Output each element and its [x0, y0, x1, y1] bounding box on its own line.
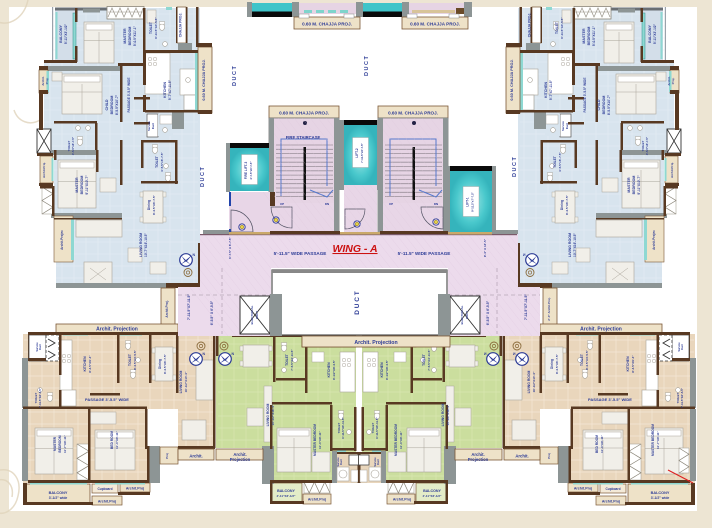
svg-text:6'-11.5"X4'-5.5": 6'-11.5"X4'-5.5": [154, 17, 158, 39]
svg-text:Archit.Proj: Archit.Proj: [126, 487, 144, 491]
svg-text:4'-5.5"x6'-7.5": 4'-5.5"x6'-7.5": [645, 136, 649, 155]
svg-text:4'-7.5"x6'-7.5": 4'-7.5"x6'-7.5": [249, 161, 253, 180]
svg-text:11'-4"X9'-11": 11'-4"X9'-11": [318, 430, 322, 449]
svg-text:7'-11.5"x6'-7.5": 7'-11.5"x6'-7.5": [360, 142, 364, 162]
svg-text:9'-7"X7'-11.5": 9'-7"X7'-11.5": [168, 79, 172, 100]
svg-text:9'-0.5"X11'-1": 9'-0.5"X11'-1": [592, 25, 596, 46]
svg-text:LIFT-1: LIFT-1: [466, 197, 470, 207]
svg-text:Archit.Proj.: Archit.Proj.: [670, 162, 674, 178]
svg-text:Projection: Projection: [230, 457, 251, 462]
svg-text:11'-4"X9'-11": 11'-4"X9'-11": [600, 434, 604, 453]
svg-text:7'-5.5"X4'-11.5": 7'-5.5"X4'-11.5": [290, 349, 294, 371]
svg-text:FIRE LIFT-3: FIRE LIFT-3: [244, 162, 248, 180]
svg-text:KITCHEN: KITCHEN: [327, 362, 331, 378]
svg-text:LIFT-2: LIFT-2: [355, 148, 359, 158]
svg-text:BEDROOM: BEDROOM: [587, 27, 591, 46]
svg-text:10'-7"X16'-10.5": 10'-7"X16'-10.5": [144, 233, 148, 257]
svg-text:0.60 M. CHAJJA PROJ.: 0.60 M. CHAJJA PROJ.: [388, 111, 438, 116]
svg-text:9'-1/2"X8'-4.5": 9'-1/2"X8'-4.5": [385, 359, 389, 380]
svg-text:ELECTRICAL: ELECTRICAL: [460, 305, 464, 324]
svg-text:LIVING ROOM: LIVING ROOM: [568, 233, 572, 257]
svg-text:D U C T: D U C T: [364, 55, 370, 76]
svg-text:3'-1/2" wide: 3'-1/2" wide: [651, 496, 670, 500]
svg-text:7'-5.5"X4'-11.5": 7'-5.5"X4'-11.5": [427, 349, 431, 371]
svg-text:Duct: Duct: [565, 123, 569, 129]
svg-text:0.60 M. CHAJJA PROJ.: 0.60 M. CHAJJA PROJ.: [302, 22, 352, 27]
svg-text:7'-11.5"X4'-5.5": 7'-11.5"X4'-5.5": [680, 387, 684, 408]
svg-text:9'-11"X3'-1/2": 9'-11"X3'-1/2": [653, 23, 657, 44]
svg-text:TOILET: TOILET: [422, 354, 426, 366]
svg-text:4'-5.5"x6'-7.5": 4'-5.5"x6'-7.5": [558, 152, 562, 172]
svg-text:MASTER BEDROOM: MASTER BEDROOM: [394, 424, 398, 456]
svg-text:Proj: Proj: [547, 453, 551, 459]
svg-text:MASTER: MASTER: [627, 177, 631, 193]
svg-text:BEDROOM: BEDROOM: [110, 96, 114, 115]
svg-text:6'-7.5" X 6'-7.5": 6'-7.5" X 6'-7.5": [228, 237, 232, 259]
svg-text:BALCONY: BALCONY: [648, 25, 652, 43]
svg-text:LIVING ROOM: LIVING ROOM: [139, 233, 143, 257]
svg-text:TOILET: TOILET: [155, 156, 159, 168]
svg-text:BEDROOM: BEDROOM: [632, 176, 636, 195]
svg-text:9'-11"X10'-7": 9'-11"X10'-7": [85, 175, 89, 195]
svg-text:Archit.Proj: Archit.Proj: [393, 498, 411, 502]
svg-text:16'-1/2"X10'-4": 16'-1/2"X10'-4": [532, 371, 536, 392]
svg-text:CHAJJA PROJ.: CHAJJA PROJ.: [179, 13, 183, 38]
svg-text:10'-1/2"X18'-4": 10'-1/2"X18'-4": [446, 404, 450, 425]
svg-text:KITCHEN: KITCHEN: [163, 82, 167, 98]
svg-text:Archit. Projection: Archit. Projection: [354, 340, 397, 346]
svg-text:Projection: Projection: [468, 457, 489, 462]
svg-text:Archit.Proj: Archit.Proj: [574, 487, 592, 491]
svg-text:8'-5.5"X10'-7": 8'-5.5"X10'-7": [115, 94, 119, 115]
svg-text:9'-0.5"X11'-1": 9'-0.5"X11'-1": [133, 25, 137, 46]
svg-text:Archit.: Archit.: [515, 454, 528, 459]
svg-text:8'-4.5"X4'-5.5": 8'-4.5"X4'-5.5": [133, 349, 137, 370]
svg-text:10'-1/2"X18'-4": 10'-1/2"X18'-4": [271, 404, 275, 425]
svg-text:6'-11.5"X3'-11.5": 6'-11.5"X3'-11.5": [375, 417, 379, 439]
svg-text:0.60 M. CHAJJA PROJ.: 0.60 M. CHAJJA PROJ.: [202, 59, 206, 100]
svg-text:Archit.Proj: Archit.Proj: [98, 500, 116, 504]
svg-text:Archit.Proj.: Archit.Proj.: [42, 162, 46, 178]
svg-text:4'-11"X3'-1/2": 4'-11"X3'-1/2": [277, 494, 297, 498]
svg-text:Duct: Duct: [38, 344, 42, 350]
svg-text:16'-1/2"X10'-4": 16'-1/2"X10'-4": [184, 371, 188, 392]
svg-text:11'-4"X9'-11": 11'-4"X9'-11": [399, 430, 403, 449]
svg-text:LIVING ROOM: LIVING ROOM: [441, 403, 445, 426]
svg-text:5'-11.5" WIDE PASSAGE: 5'-11.5" WIDE PASSAGE: [274, 251, 327, 256]
svg-text:MASTER: MASTER: [582, 28, 586, 44]
svg-text:MASTER: MASTER: [75, 177, 79, 193]
svg-text:6'-11.5"X4'-5.5": 6'-11.5"X4'-5.5": [560, 17, 564, 39]
svg-text:11'-7"X9'-11": 11'-7"X9'-11": [63, 434, 67, 453]
svg-text:9'-11.5"x7'-7.5": 9'-11.5"x7'-7.5": [471, 191, 475, 211]
svg-text:8'-4.5"X6'-7.5": 8'-4.5"X6'-7.5": [565, 194, 569, 215]
svg-text:Dining: Dining: [560, 200, 564, 210]
svg-text:BEDROOM: BEDROOM: [602, 96, 606, 115]
svg-text:Duct: Duct: [151, 123, 155, 129]
svg-text:DN: DN: [325, 202, 329, 206]
svg-text:8'-5.5"X10'-7": 8'-5.5"X10'-7": [607, 94, 611, 115]
svg-text:LIVING ROOM: LIVING ROOM: [179, 370, 183, 393]
svg-text:Archit.Projec: Archit.Projec: [652, 230, 656, 250]
svg-text:4'-5.5"x6'-7.5": 4'-5.5"x6'-7.5": [71, 136, 75, 155]
svg-text:MASTER BEDROOM: MASTER BEDROOM: [651, 424, 655, 456]
svg-text:8'-4.5"X9'-4": 8'-4.5"X9'-4": [631, 355, 635, 373]
svg-text:WING - A: WING - A: [332, 243, 377, 255]
svg-text:PASSAGE 3'-5.5" WIDE: PASSAGE 3'-5.5" WIDE: [85, 397, 129, 402]
svg-text:D U C T: D U C T: [232, 65, 238, 86]
svg-text:9'-11"X3'-1/2": 9'-11"X3'-1/2": [64, 23, 68, 44]
svg-text:MASTER: MASTER: [123, 28, 127, 44]
svg-text:CHILD: CHILD: [105, 99, 109, 110]
svg-text:PASSAGE 3'-5.5" WIDE: PASSAGE 3'-5.5" WIDE: [583, 78, 587, 113]
svg-text:TOILET: TOILET: [149, 21, 153, 34]
svg-text:9'-11"X10'-7": 9'-11"X10'-7": [637, 175, 641, 195]
svg-text:9'-7"X7'-11.5": 9'-7"X7'-11.5": [549, 79, 553, 100]
svg-text:D U C T: D U C T: [200, 166, 206, 187]
svg-text:MASTER BEDROOM: MASTER BEDROOM: [313, 424, 317, 456]
svg-text:DUCT: DUCT: [255, 311, 259, 319]
svg-text:BALCONY: BALCONY: [59, 25, 63, 43]
svg-text:Dining: Dining: [158, 359, 162, 369]
svg-text:Duct: Duct: [339, 459, 343, 465]
svg-text:10'-7"X16'-10.5": 10'-7"X16'-10.5": [573, 233, 577, 257]
svg-text:9'-4" X 13'-5": 9'-4" X 13'-5": [483, 238, 487, 257]
svg-text:6'-11.5"X3'-11.5": 6'-11.5"X3'-11.5": [341, 417, 345, 439]
svg-text:BALCONY: BALCONY: [651, 491, 670, 495]
svg-text:Archit.Projec: Archit.Projec: [60, 230, 64, 250]
svg-text:11'-4"X9'-11": 11'-4"X9'-11": [115, 430, 119, 449]
svg-text:Archit.Proj: Archit.Proj: [602, 500, 620, 504]
svg-text:0.60 M. CHAJJA PROJ.: 0.60 M. CHAJJA PROJ.: [279, 111, 329, 116]
svg-text:Archit.Proj: Archit.Proj: [308, 498, 326, 502]
svg-text:Archit.Proj.: Archit.Proj.: [165, 300, 169, 317]
svg-text:8'-4.5"X4'-5.5": 8'-4.5"X4'-5.5": [585, 349, 589, 370]
svg-text:DUCT: DUCT: [465, 311, 469, 319]
svg-text:TOILET: TOILET: [285, 354, 289, 366]
svg-text:8'-4.5"X9'-4": 8'-4.5"X9'-4": [88, 355, 92, 373]
svg-text:TOILET: TOILET: [555, 21, 559, 34]
svg-text:FIRE STAIRCASE: FIRE STAIRCASE: [286, 135, 321, 140]
svg-text:KITCHEN: KITCHEN: [626, 356, 630, 372]
svg-text:11'-7"X9'-11": 11'-7"X9'-11": [656, 430, 660, 449]
svg-text:Proj: Proj: [165, 453, 169, 459]
svg-text:Proj.: Proj.: [671, 78, 675, 85]
svg-text:KITCHEN: KITCHEN: [83, 356, 87, 372]
svg-text:8'-4.5"X6'-7.5": 8'-4.5"X6'-7.5": [152, 194, 156, 215]
svg-text:9'-1/2"X8'-4.5": 9'-1/2"X8'-4.5": [332, 359, 336, 380]
svg-text:0.60 M. CHAJJA PROJ.: 0.60 M. CHAJJA PROJ.: [510, 59, 514, 100]
svg-text:PASSAGE 3'-5.5" WIDE: PASSAGE 3'-5.5" WIDE: [127, 78, 131, 113]
svg-text:LIVING ROOM: LIVING ROOM: [266, 403, 270, 426]
svg-text:6'-5.5" X 6'-5.5": 6'-5.5" X 6'-5.5": [210, 300, 214, 325]
svg-text:BED ROOM: BED ROOM: [595, 435, 599, 453]
svg-text:BALCONY: BALCONY: [277, 489, 295, 493]
svg-text:CHILD: CHILD: [597, 99, 601, 110]
svg-text:4'-5.5"x6'-7.5": 4'-5.5"x6'-7.5": [160, 152, 164, 172]
svg-text:LIVING ROOM: LIVING ROOM: [527, 370, 531, 393]
svg-text:BED ROOM: BED ROOM: [110, 431, 114, 449]
svg-text:DN: DN: [434, 202, 438, 206]
svg-text:UP: UP: [280, 202, 284, 206]
svg-text:KITCHEN: KITCHEN: [544, 82, 548, 98]
svg-text:PASSAGE 3'-5.5" WIDE: PASSAGE 3'-5.5" WIDE: [588, 397, 632, 402]
svg-text:BEDROOM: BEDROOM: [80, 176, 84, 195]
svg-text:5'-11.5" WIDE PASSAGE: 5'-11.5" WIDE PASSAGE: [398, 251, 451, 256]
svg-text:4'-11"X3'-1/2": 4'-11"X3'-1/2": [423, 494, 443, 498]
svg-text:7'-11.5"X7'-11.5": 7'-11.5"X7'-11.5": [187, 294, 191, 320]
svg-text:2'-0" Archit.Proj.: 2'-0" Archit.Proj.: [547, 297, 551, 321]
svg-text:BALCONY: BALCONY: [49, 491, 68, 495]
svg-text:CHAJJA PROJ.: CHAJJA PROJ.: [528, 13, 532, 38]
svg-text:7'-11.5"X7'-11.5": 7'-11.5"X7'-11.5": [524, 294, 528, 320]
svg-text:D U C T: D U C T: [512, 156, 518, 177]
svg-text:Proj.: Proj.: [45, 78, 49, 85]
svg-text:3'-1/2" wide: 3'-1/2" wide: [49, 496, 68, 500]
svg-text:Duct: Duct: [376, 459, 380, 465]
svg-text:D U C T: D U C T: [354, 291, 361, 315]
svg-text:8'-4.5"X6'-7.5": 8'-4.5"X6'-7.5": [163, 353, 167, 374]
svg-text:Duct: Duct: [680, 344, 684, 350]
svg-text:Archit. Projection: Archit. Projection: [580, 327, 622, 333]
svg-text:Cupboard: Cupboard: [605, 487, 620, 491]
svg-text:MASTER: MASTER: [53, 436, 57, 451]
svg-text:BEDROOM: BEDROOM: [128, 27, 132, 46]
svg-text:TOILET: TOILET: [553, 156, 557, 168]
svg-text:Dining: Dining: [147, 200, 151, 210]
svg-text:Archit. Projection: Archit. Projection: [96, 327, 138, 333]
svg-text:6'-5.5" X 6'-5.5": 6'-5.5" X 6'-5.5": [486, 300, 490, 325]
svg-text:TOILET: TOILET: [580, 353, 584, 366]
svg-text:UP: UP: [389, 202, 393, 206]
svg-text:BEDROOM: BEDROOM: [58, 435, 62, 452]
svg-text:Dining: Dining: [550, 359, 554, 369]
svg-text:0.60 M. CHAJJA PROJ.: 0.60 M. CHAJJA PROJ.: [410, 22, 460, 27]
svg-text:TOILET: TOILET: [128, 353, 132, 366]
svg-text:BALCONY: BALCONY: [423, 489, 441, 493]
svg-text:Archit.: Archit.: [189, 454, 202, 459]
svg-text:ELECTRICAL: ELECTRICAL: [250, 305, 254, 324]
svg-text:Cupboard: Cupboard: [97, 487, 112, 491]
svg-text:8'-4.5"X6'-7.5": 8'-4.5"X6'-7.5": [555, 353, 559, 374]
svg-text:KITCHEN: KITCHEN: [380, 362, 384, 378]
svg-text:7'-11.5"X4'-5.5": 7'-11.5"X4'-5.5": [38, 387, 42, 408]
